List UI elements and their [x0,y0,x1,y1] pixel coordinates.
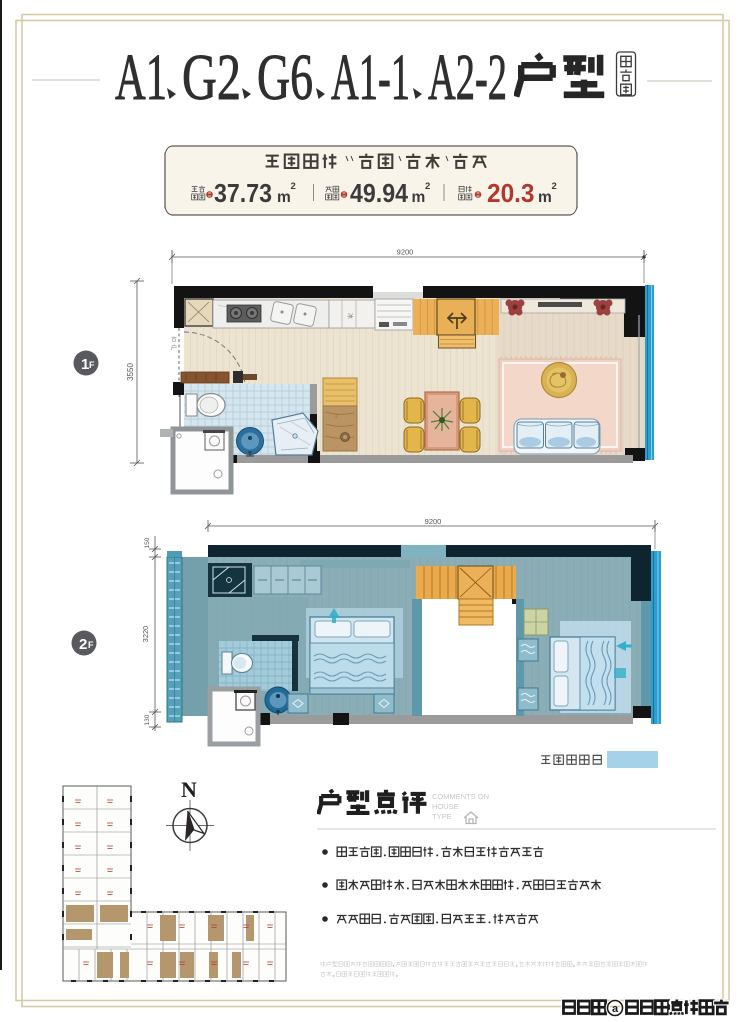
svg-text:N: N [181,777,197,802]
svg-text:冰: 冰 [346,313,354,319]
svg-text:20.3: 20.3 [487,180,535,208]
svg-text:9200: 9200 [397,248,414,257]
svg-text:37.73: 37.73 [214,180,272,208]
svg-text:a: a [612,1003,619,1015]
svg-text:2: 2 [79,636,87,653]
svg-text:2: 2 [425,181,430,192]
svg-text:49.94: 49.94 [350,180,409,208]
svg-text:HOUSE: HOUSE [432,802,459,811]
svg-text:F: F [89,360,95,370]
svg-text:A2-2: A2-2 [428,41,507,114]
svg-text:130: 130 [144,714,151,725]
svg-text:m: m [412,189,426,206]
svg-text:9200: 9200 [425,517,442,526]
svg-text:2: 2 [291,181,296,192]
svg-text:G6: G6 [257,41,313,114]
svg-text:A1: A1 [115,41,167,114]
svg-text:3550: 3550 [126,363,135,381]
svg-text:G2: G2 [182,41,241,114]
svg-text:m: m [277,189,291,206]
svg-text:m: m [538,189,552,206]
svg-text:150: 150 [144,537,151,548]
svg-text:F: F [88,640,94,650]
svg-text:3220: 3220 [141,626,150,643]
svg-text:A1-1: A1-1 [331,41,410,114]
svg-text:2: 2 [552,181,557,192]
svg-text:TYPE: TYPE [432,812,452,821]
svg-text:COMMENTS ON: COMMENTS ON [432,792,489,801]
